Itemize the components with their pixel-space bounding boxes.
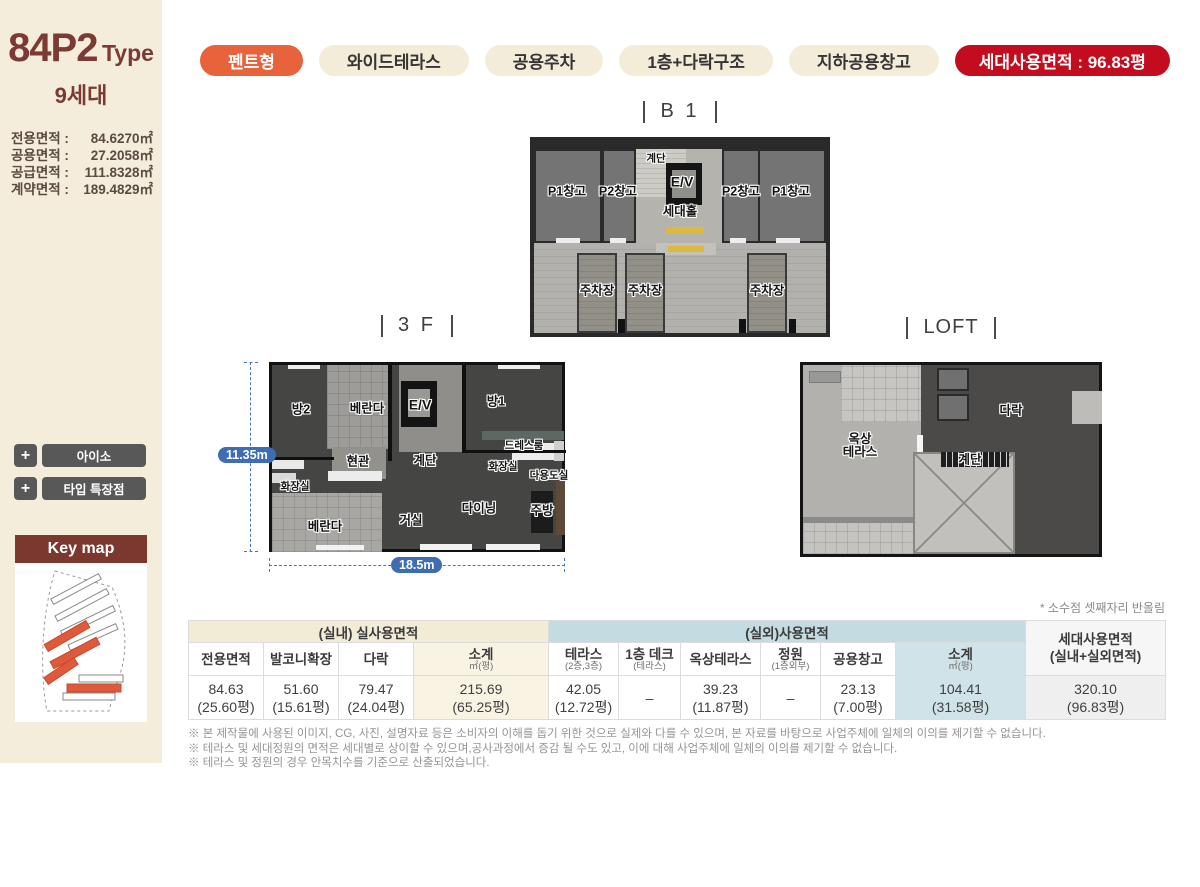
floor-plan-3f: 방2 베란다 E/V 방1 현관 계단 드레스룸 화장실 다용도실 화장실 베란… [269, 362, 565, 552]
area-value-cell: 42.05(12.72평) [549, 676, 619, 720]
floor-title-text: LOFT [923, 316, 978, 339]
group-header-indoor: (실내) 실사용면적 [189, 621, 549, 643]
area-value: 189.4829㎡ [83, 181, 153, 198]
area-value-cell: 320.10(96.83평) [1026, 676, 1166, 720]
area-value-cell: 23.13(7.00평) [821, 676, 896, 720]
room-label: 주차장 [750, 285, 785, 298]
col-header: 1층 데크(테라스) [619, 643, 681, 676]
area-value-cell: – [619, 676, 681, 720]
window [420, 544, 472, 550]
col-header: 다락 [339, 643, 414, 676]
col-header: 소계㎡(평) [896, 643, 1026, 676]
room-label: 다이닝 [462, 503, 497, 516]
type-feature-button-row: + 타입 특장점 [14, 477, 146, 500]
area-value: 111.8328㎡ [85, 164, 153, 181]
area-label: 공용면적 : [11, 147, 69, 164]
area-label: 계약면적 : [11, 181, 69, 198]
title-bar [715, 101, 717, 123]
group-header-total: 세대사용면적 (실내+실외면적) [1026, 621, 1166, 676]
b1-post [618, 319, 625, 333]
area-row: 공용면적 : 27.2058㎡ [11, 147, 153, 164]
type-feature-button[interactable]: 타입 특장점 [42, 477, 146, 500]
f3-shoe-cabinet [328, 471, 382, 481]
b1-yellow-strip [668, 246, 704, 252]
tag-wide-terrace: 와이드테라스 [319, 45, 469, 76]
room-label: 계단 [958, 454, 981, 467]
loft-closet-box [937, 368, 969, 391]
area-value-cell: 51.60(15.61평) [264, 676, 339, 720]
floor-title-loft: LOFT [800, 316, 1102, 339]
wall [272, 457, 334, 460]
loft-terrace-tiles [841, 365, 921, 422]
area-row: 계약면적 : 189.4829㎡ [11, 181, 153, 198]
floor-plan-b1: P1창고 P2창고 계단 E/V 세대홀 P2창고 P1창고 주차장 주차장 주… [530, 137, 830, 337]
title-bar [906, 317, 908, 339]
room-label: P1창고 [548, 186, 586, 199]
title-bar [381, 315, 383, 337]
floor-title-text: 3 F [398, 314, 436, 337]
loft-terrace-lower-tiles [803, 523, 921, 554]
floor-title-b1: B 1 [530, 100, 830, 123]
iso-button-row: + 아이소 [14, 444, 146, 467]
tag-shared-parking: 공용주차 [485, 45, 604, 76]
col-header: 전용면적 [189, 643, 264, 676]
group-header-outdoor: (실외)사용면적 [549, 621, 1026, 643]
area-row: 공급면적 : 111.8328㎡ [11, 164, 153, 181]
room-label: P1창고 [772, 186, 810, 199]
window [316, 545, 364, 550]
title-bar [643, 101, 645, 123]
dimension-tick [269, 558, 270, 572]
room-label: 옥상 테라스 [843, 433, 878, 459]
area-value-cell: 104.41(31.58평) [896, 676, 1026, 720]
b1-post [739, 319, 746, 333]
area-row: 전용면적 : 84.6270㎡ [11, 130, 153, 147]
unit-count: 9세대 [0, 78, 162, 110]
plus-icon[interactable]: + [14, 444, 37, 467]
room-label: P2창고 [722, 186, 760, 199]
room-label: 화장실 [489, 461, 518, 474]
b1-yellow-strip [666, 227, 704, 234]
room-label: 드레스룸 [505, 440, 544, 453]
col-header: 옥상테라스 [681, 643, 761, 676]
room-label: 방2 [292, 404, 310, 417]
room-label: 현관 [346, 456, 369, 469]
room-label: 다용도실 [530, 470, 569, 483]
dimension-width-label: 18.5m [391, 557, 442, 573]
window [486, 544, 540, 550]
col-header: 테라스(2층,3층) [549, 643, 619, 676]
footnote: ※ 테라스 및 세대정원의 면적은 세대별로 상이할 수 있으며,공사과정에서 … [188, 742, 1168, 757]
rounding-note: * 소수점 셋째자리 반올림 [865, 599, 1165, 616]
tag-loft-structure: 1층+다락구조 [619, 45, 773, 76]
room-label: P2창고 [599, 186, 637, 199]
col-header: 소계㎡(평) [414, 643, 549, 676]
room-label: 주차장 [580, 285, 615, 298]
room-label: 베란다 [350, 403, 385, 416]
footnote: ※ 본 제작물에 사용된 이미지, CG, 사진, 설명자료 등은 소비자의 이… [188, 727, 1168, 742]
room-label: E/V [671, 176, 694, 189]
floor-plan-loft: 옥상 테라스 다락 계단 [800, 362, 1102, 557]
title-bar [451, 315, 453, 337]
room-label: 계단 [413, 455, 436, 468]
room-label: 거실 [399, 515, 422, 528]
loft-planter [809, 371, 841, 383]
col-header: 정원(1층외부) [761, 643, 821, 676]
room-label: 주차장 [628, 285, 663, 298]
room-label: 다락 [999, 405, 1022, 418]
dimension-tick [244, 362, 258, 363]
page-title: 84P2 Type [0, 26, 162, 71]
wall [462, 365, 466, 453]
tag-basement-storage: 지하공용창고 [789, 45, 939, 76]
area-value-cell: 39.23(11.87평) [681, 676, 761, 720]
tag-row: 펜트형 와이드테라스 공용주차 1층+다락구조 지하공용창고 세대사용면적 : … [200, 45, 1170, 76]
floor-plan-page: 84P2 Type 9세대 전용면적 : 84.6270㎡ 공용면적 : 27.… [0, 0, 1200, 887]
area-value-cell: – [761, 676, 821, 720]
room-label: 화장실 [281, 481, 310, 494]
b1-post [789, 319, 796, 333]
wall [388, 365, 392, 461]
sidebar: 84P2 Type 9세대 전용면적 : 84.6270㎡ 공용면적 : 27.… [0, 0, 162, 763]
title-bar [994, 317, 996, 339]
floor-title-text: B 1 [660, 100, 699, 123]
tag-penthouse: 펜트형 [200, 45, 303, 76]
footnotes: ※ 본 제작물에 사용된 이미지, CG, 사진, 설명자료 등은 소비자의 이… [188, 727, 1168, 771]
room-label: 주방 [530, 505, 553, 518]
door-gap [917, 435, 923, 452]
area-summary-list: 전용면적 : 84.6270㎡ 공용면적 : 27.2058㎡ 공급면적 : 1… [11, 130, 153, 198]
area-value-cell: 84.63(25.60평) [189, 676, 264, 720]
type-code: 84P2 [8, 26, 97, 70]
f3-kitchen-cabinet [556, 481, 565, 535]
iso-button[interactable]: 아이소 [42, 444, 146, 467]
loft-open-void [913, 452, 1015, 554]
keymap-title: Key map [15, 535, 147, 563]
room-label: 베란다 [308, 521, 343, 534]
area-value: 84.6270㎡ [91, 130, 153, 147]
area-table: (실내) 실사용면적 (실외)사용면적 세대사용면적 (실내+실외면적) 전용면… [188, 620, 1166, 720]
area-value: 27.2058㎡ [91, 147, 153, 164]
plus-icon[interactable]: + [14, 477, 37, 500]
type-suffix: Type [102, 40, 154, 66]
room-label: 세대홀 [663, 206, 698, 219]
loft-closet-box [937, 394, 969, 421]
badge-total-area: 세대사용면적 : 96.83평 [955, 45, 1170, 76]
area-label: 공급면적 : [11, 164, 69, 181]
window [288, 365, 320, 369]
area-value-cell: 215.69(65.25평) [414, 676, 549, 720]
dimension-tick [244, 551, 258, 552]
window [498, 365, 540, 369]
floor-title-3f: 3 F [269, 314, 565, 337]
footnote: ※ 테라스 및 정원의 경우 안목치수를 기준으로 산출되었습니다. [188, 756, 1168, 771]
loft-right-niche [1072, 391, 1102, 424]
area-value-cell: 79.47(24.04평) [339, 676, 414, 720]
keymap-card: Key map [15, 535, 147, 722]
dimension-tick [564, 558, 565, 572]
area-label: 전용면적 : [11, 130, 69, 147]
room-label: 계단 [646, 153, 665, 166]
room-label: 방1 [487, 396, 505, 409]
dimension-height-label: 11.35m [218, 447, 276, 463]
col-header: 공용창고 [821, 643, 896, 676]
col-header: 발코니확장 [264, 643, 339, 676]
keymap-site-plan [15, 563, 147, 722]
room-label: E/V [409, 399, 432, 412]
